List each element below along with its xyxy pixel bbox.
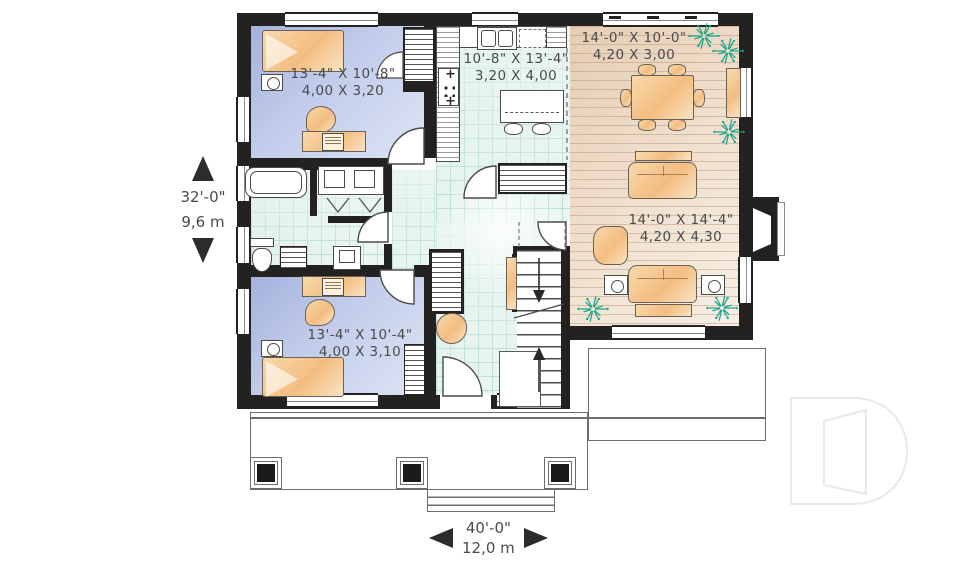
stove-burner-icon: + [445,97,456,107]
depth-metric: 9,6 m [181,213,224,231]
island-stool [504,123,523,135]
vanity-sink [324,170,345,188]
room-label-bedroom-top: 13'-4" X 10'-8" 4,00 X 3,20 [258,66,428,99]
porch-deck-line [250,417,588,419]
computer [322,278,344,296]
window [472,12,518,27]
room-size-imperial: 13'-4" X 10'-4" [308,327,413,343]
porch-post-core [257,464,275,482]
room-label-dining: 14'-0" X 10'-0" 4,20 X 3,00 [549,30,719,63]
room-size-imperial: 14'-0" X 10'-0" [582,30,687,46]
powder-sink [339,250,355,263]
cushion-line [663,166,664,176]
wall [384,244,392,277]
buffet [726,68,741,118]
floor-plan-canvas: + + [0,0,960,569]
porch-post [250,457,282,489]
bed [262,357,344,397]
deck-right-line [588,417,766,419]
room-size-metric: 4,00 X 3,10 [319,344,401,360]
window [236,289,251,334]
porch-post [544,457,576,489]
kitchen-island [500,90,564,123]
arrow-right-icon [524,528,548,548]
stair-landing-box [499,351,541,407]
width-imperial: 40'-0" [466,519,511,537]
foyer-closet [429,249,464,314]
porch-post [396,457,428,489]
kitchen-half-wall [498,163,567,194]
window [612,325,705,340]
cushion-line [663,269,664,280]
room-label-bedroom-bottom: 13'-4" X 10'-4" 4,00 X 3,10 [275,327,445,360]
loveseat [628,162,697,199]
room-size-metric: 3,20 X 4,00 [475,68,557,84]
toilet-tank [250,238,274,247]
sink-basin [481,30,496,47]
overall-depth-dimension: 32'-0" 9,6 m [164,156,242,263]
plant-icon [577,293,609,325]
arrow-down-icon [192,238,214,263]
plant-icon [706,292,738,324]
coffee-table [635,304,692,317]
sink-basin [498,30,513,47]
room-size-metric: 4,20 X 3,00 [593,47,675,63]
end-table [604,275,628,295]
room-size-metric: 4,20 X 4,30 [640,229,722,245]
island-stool [532,123,551,135]
dining-chair [693,89,705,107]
arrow-up-icon [192,156,214,181]
dining-chair [620,89,632,107]
logo-inner-door [824,410,866,494]
dining-chair [668,64,686,76]
vanity-sink [354,170,375,188]
porch-post-core [403,464,421,482]
arrow-left-icon [429,528,453,548]
computer [322,133,344,151]
front-door-opening [440,394,491,409]
desk-chair [306,106,336,133]
blanket-fold [266,361,298,397]
blanket-fold [266,34,298,70]
dishwasher [519,29,546,48]
desk-chair [305,299,335,326]
dining-chair [668,119,686,131]
porch-post-core [551,464,569,482]
dining-chair [638,119,656,131]
window [285,12,378,27]
wall [310,170,317,216]
deck-right-outline [588,348,766,441]
hall-bench [506,257,517,310]
bathtub-basin [250,171,302,194]
width-metric: 12,0 m [462,539,515,557]
console-table [635,151,692,161]
brand-d-logo [786,395,914,507]
window [738,257,753,303]
island-overhang-line [505,112,559,113]
depth-imperial: 32'-0" [180,188,225,206]
wall [328,216,384,223]
room-label-living: 14'-0" X 14'-4" 4,20 X 4,30 [596,212,766,245]
sofa [628,265,697,303]
room-size-imperial: 13'-4" X 10'-8" [291,66,396,82]
window [236,97,251,142]
porch-steps [427,489,555,512]
overall-width-dimension: 40'-0" 12,0 m [429,519,548,557]
dining-table [631,75,694,120]
dining-chair [638,64,656,76]
linen-closet [280,246,307,269]
fireplace-hearth [777,202,785,256]
room-size-metric: 4,00 X 3,20 [302,83,384,99]
wall [384,158,392,212]
room-size-imperial: 14'-0" X 14'-4" [629,212,734,228]
plant-icon [713,116,745,148]
